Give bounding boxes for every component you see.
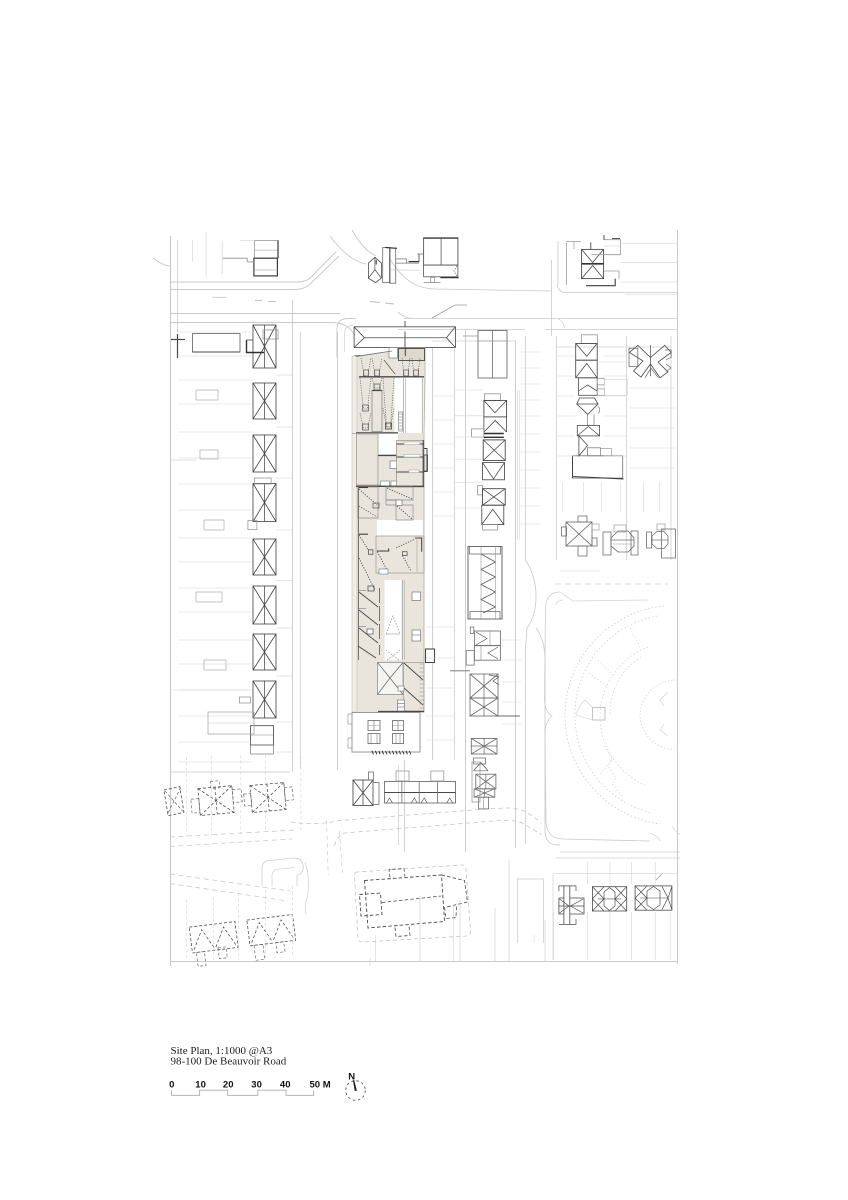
svg-text:98-100 De Beauvoir Road: 98-100 De Beauvoir Road [171,1056,287,1068]
svg-text:40: 40 [280,1080,291,1091]
svg-text:10: 10 [195,1080,206,1091]
svg-text:50 M: 50 M [310,1080,331,1091]
svg-text:20: 20 [223,1080,234,1091]
svg-text:N: N [348,1071,355,1082]
svg-text:30: 30 [251,1080,262,1091]
svg-text:0: 0 [169,1080,174,1091]
